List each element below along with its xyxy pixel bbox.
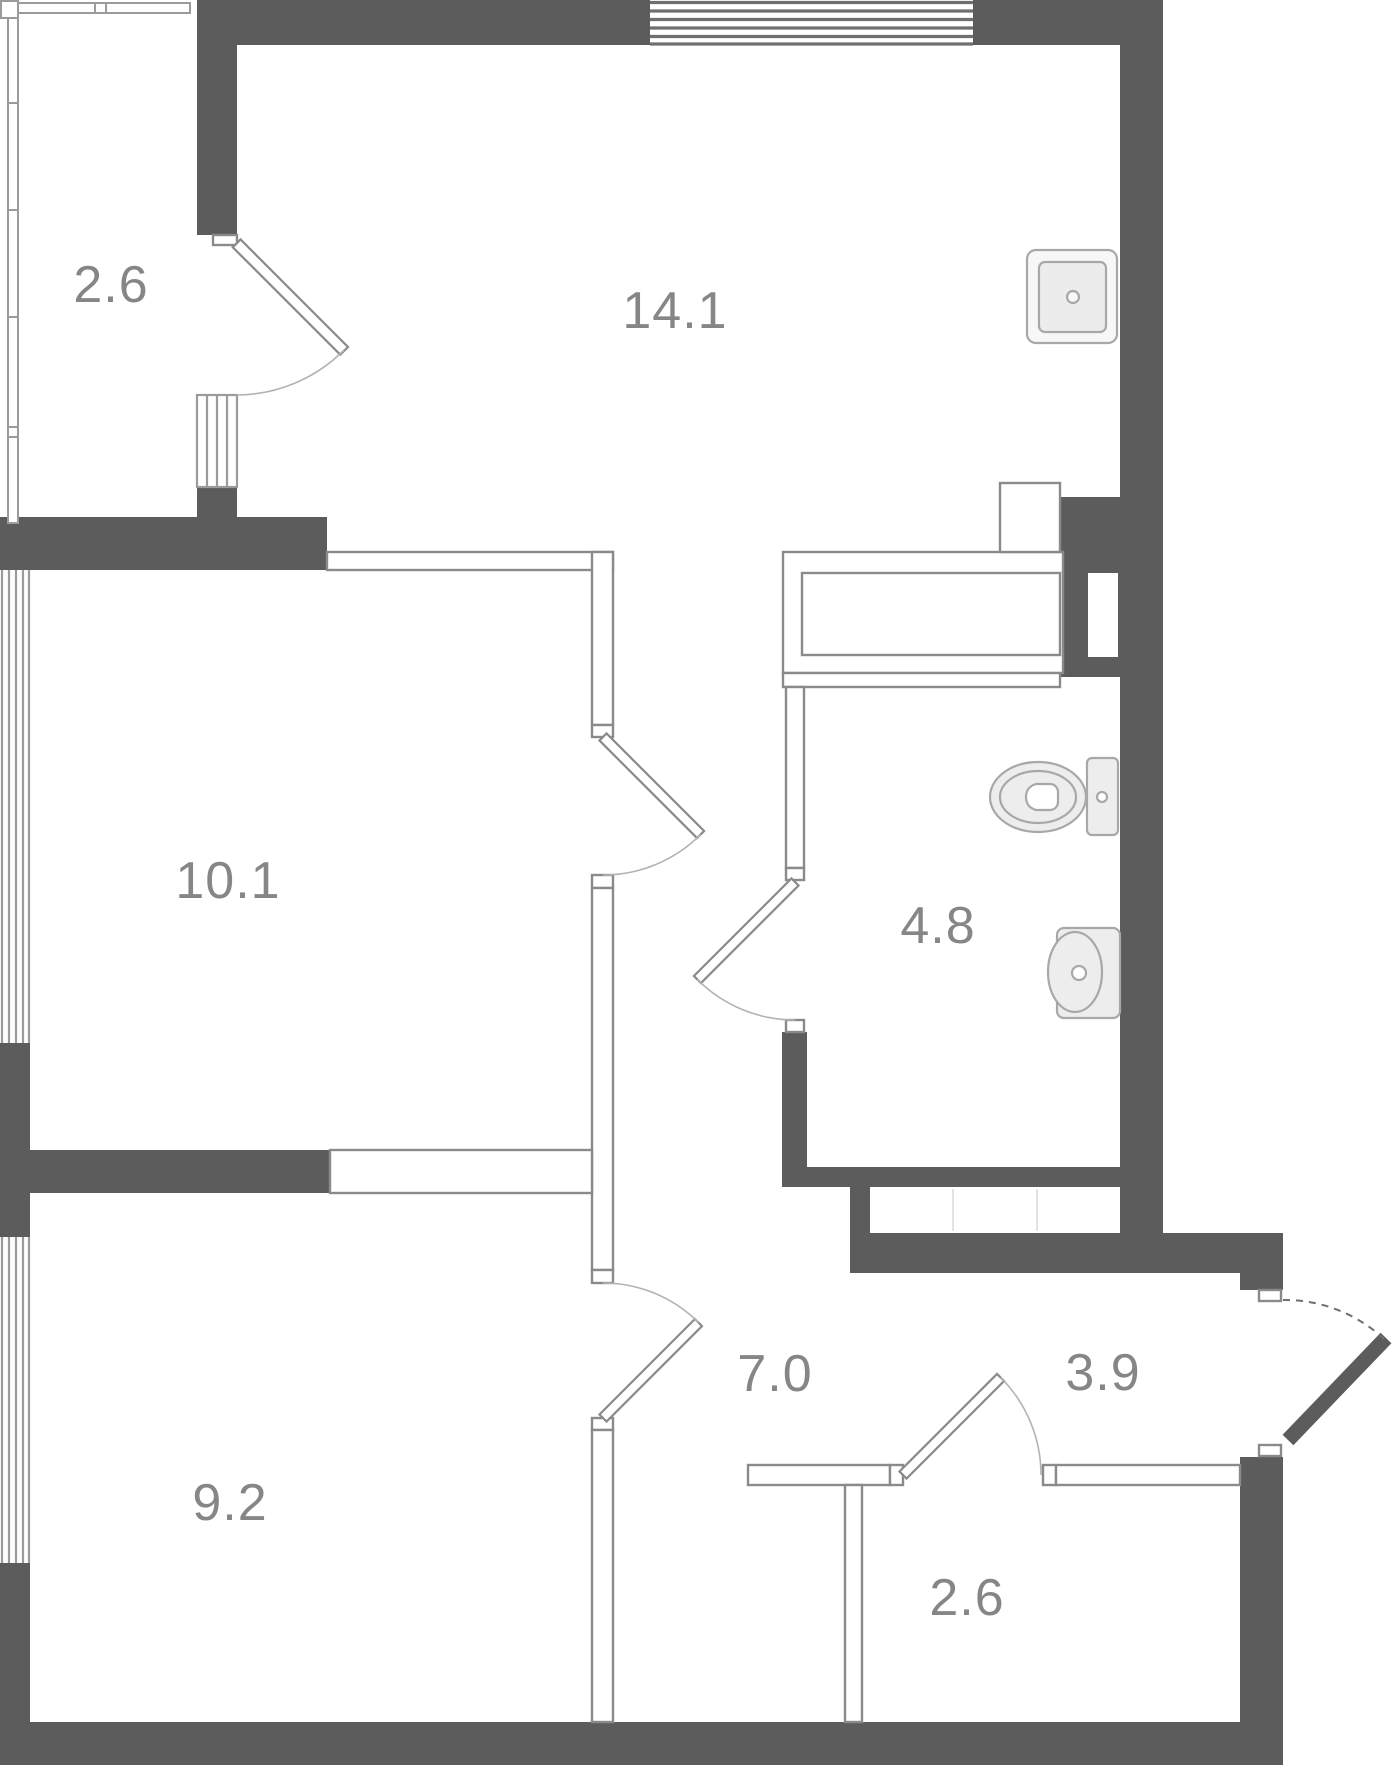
entry-niche — [953, 1189, 1037, 1231]
window-bedroom-2 — [2, 1237, 29, 1563]
wall-entry-below-door — [1240, 1457, 1283, 1722]
wall-balcony-divider — [197, 0, 237, 235]
vent-strip-bg — [650, 0, 973, 45]
bathroom-door-arc — [697, 980, 795, 1020]
partition-hall-west-seg1 — [592, 552, 613, 725]
bathroom-door — [694, 878, 799, 1020]
toilet-icon — [990, 758, 1118, 835]
door-jamb — [592, 1418, 613, 1430]
kitchen-sink-icon — [1027, 250, 1117, 343]
partition-bedrooms-thin — [330, 1150, 592, 1193]
balcony-door — [233, 239, 348, 395]
partition-storage-tee — [845, 1485, 862, 1722]
duct-pocket — [1088, 573, 1118, 657]
wall-bathroom-west-lower — [782, 1032, 807, 1187]
door-jamb — [1043, 1465, 1056, 1485]
windows-left-wall — [2, 395, 237, 1563]
partition-hall-west-seg2 — [592, 888, 613, 1270]
bedroom-1-door-arc — [603, 835, 701, 875]
storage-door-leaf — [899, 1374, 1004, 1479]
storage-door — [899, 1374, 1041, 1479]
label-bedroom-1: 10.1 — [175, 852, 280, 910]
door-jamb — [213, 235, 237, 245]
glazing-corner-post — [1, 1, 18, 18]
shaft-bump — [1000, 483, 1060, 552]
label-hallway: 7.0 — [737, 1345, 812, 1403]
door-jamb — [890, 1465, 903, 1485]
wall-top-left — [197, 0, 650, 45]
bedroom-2-door-leaf — [599, 1319, 702, 1422]
wall-under-balcony — [0, 517, 327, 570]
balcony-door-arc — [237, 350, 344, 395]
bedroom-2-door — [599, 1283, 702, 1422]
bedroom-1-door-leaf — [599, 733, 704, 838]
wall-bathroom-south — [782, 1167, 1120, 1187]
storage-door-arc — [1001, 1377, 1041, 1475]
partition-bathroom-north — [783, 673, 1060, 687]
door-jamb — [592, 725, 613, 737]
bedroom-1-door — [599, 733, 704, 875]
wall-entry-step — [1240, 1273, 1283, 1290]
glazing-left — [8, 18, 18, 523]
label-storage: 2.6 — [929, 1569, 1004, 1627]
balcony-door-leaf — [233, 239, 348, 354]
door-jamb — [1259, 1290, 1281, 1301]
floor-plan: 2.6 14.1 10.1 4.8 7.0 3.9 9.2 2.6 — [0, 0, 1400, 1765]
window-bedroom-1 — [2, 570, 29, 1043]
doors — [233, 239, 1386, 1478]
label-bathroom: 4.8 — [900, 897, 975, 955]
entrance-door-arc — [1283, 1300, 1384, 1339]
entrance-door-leaf — [1288, 1338, 1386, 1440]
door-jamb — [786, 868, 804, 880]
door-jamb — [592, 875, 613, 888]
bedroom-2-door-arc — [603, 1283, 699, 1323]
wall-right — [1120, 0, 1163, 1233]
partition-bathroom-west — [786, 687, 804, 868]
door-jamb — [592, 1270, 613, 1283]
label-entry: 3.9 — [1065, 1344, 1140, 1402]
door-jamb — [786, 1020, 804, 1032]
top-vent-strip — [650, 0, 973, 45]
partition-living-bedroom1 — [327, 552, 613, 570]
wall-hall-south-band — [850, 1233, 1283, 1273]
wash-basin-icon — [1048, 928, 1120, 1018]
wall-left-pier — [0, 1043, 30, 1237]
label-bedroom-2: 9.2 — [192, 1474, 267, 1532]
label-living-room: 14.1 — [622, 282, 727, 340]
entrance-door — [1283, 1300, 1386, 1440]
glazing-top — [18, 3, 190, 13]
wall-bedrooms-divider-dark — [0, 1150, 330, 1193]
door-jamb — [1259, 1445, 1281, 1456]
wall-bottom — [0, 1722, 1283, 1765]
partition-corridor-south-segA — [748, 1465, 890, 1485]
floor-plan-drawing: 2.6 14.1 10.1 4.8 7.0 3.9 9.2 2.6 — [0, 0, 1400, 1765]
partition-hall-west-seg3 — [592, 1430, 613, 1722]
window-balcony-sill — [197, 395, 237, 487]
bathroom-door-leaf — [694, 878, 799, 983]
partition-corridor-south-segB — [1056, 1465, 1240, 1485]
label-balcony: 2.6 — [73, 256, 148, 314]
wall-niche-pier — [850, 1187, 870, 1233]
shaft-inner — [802, 573, 1060, 655]
